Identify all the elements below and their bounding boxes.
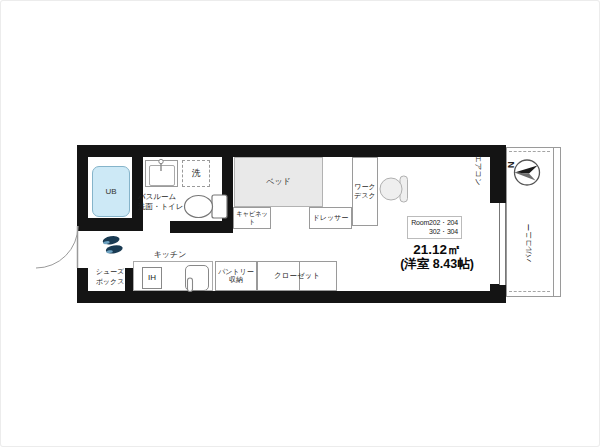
- shoes-icon: [102, 235, 123, 255]
- work-desk: ワーク デスク: [352, 157, 378, 226]
- bathroom-label: バスルーム 洗面・トイレ: [138, 192, 184, 212]
- ih-label: IH: [148, 273, 156, 282]
- closet: クローゼット: [257, 261, 337, 291]
- balcony-dashed-bottom: [509, 291, 550, 292]
- kitchen-label: キッチン: [150, 249, 190, 260]
- bed: ベッド: [234, 157, 323, 207]
- wall-left-upper: [77, 145, 88, 226]
- kitchen-sink: [185, 265, 209, 291]
- room-numbers-2: 302・304: [429, 228, 458, 236]
- floor-plan: バルコニー N UB 洗 バスルーム 洗面・トイレ ベッド キャビネット ドレッ…: [0, 0, 600, 447]
- window-right: [499, 203, 506, 285]
- vanity-sink: [149, 165, 175, 186]
- chair-icon: [380, 176, 408, 202]
- wall-right-lower: [490, 284, 506, 303]
- washer-space: 洗: [182, 160, 210, 187]
- wall-ub-bottom: [77, 218, 143, 231]
- wall-washroom-right: [222, 145, 233, 233]
- balcony: [506, 147, 554, 297]
- dresser-label: ドレッサー: [313, 214, 349, 222]
- toilet-icon: [185, 195, 228, 218]
- vanity-unit: [145, 160, 178, 187]
- balcony-label: バルコニー: [524, 224, 534, 262]
- pantry: パントリー 収納: [215, 261, 257, 291]
- dresser: ドレッサー: [309, 207, 352, 229]
- pantry-label-1: パントリー: [218, 268, 254, 276]
- balcony-dashed-top: [509, 151, 550, 152]
- cabinet-label: キャビネット: [234, 210, 270, 225]
- closet-label: クローゼット: [274, 272, 320, 281]
- room-numbers-1: Room202・204: [411, 219, 458, 227]
- aircon-label: エアコン: [473, 155, 483, 186]
- room-number-box: Room202・204 302・304: [407, 216, 462, 239]
- balcony-railing: [553, 147, 561, 297]
- wall-bottom: [77, 291, 506, 303]
- washer-label: 洗: [192, 168, 201, 179]
- wall-washroom-bottom: [170, 221, 233, 233]
- shoebox-label: シューズ ボックス: [86, 267, 134, 286]
- compass-north-label: N: [506, 162, 516, 169]
- unit-bath-label: UB: [105, 187, 116, 196]
- entry-door-icon: [36, 226, 78, 268]
- pantry-label-2: 収納: [229, 276, 243, 284]
- work-desk-label-2: デスク: [354, 192, 376, 200]
- ih-stove: IH: [142, 267, 162, 289]
- wall-top: [77, 145, 506, 157]
- work-desk-label-1: ワーク: [354, 183, 375, 191]
- cabinet: キャビネット: [233, 207, 271, 229]
- bed-label: ベッド: [266, 177, 291, 186]
- layout-label: (洋室 8.43帖): [387, 256, 487, 273]
- wall-right-upper: [490, 145, 506, 203]
- unit-bath-tub: UB: [92, 166, 130, 217]
